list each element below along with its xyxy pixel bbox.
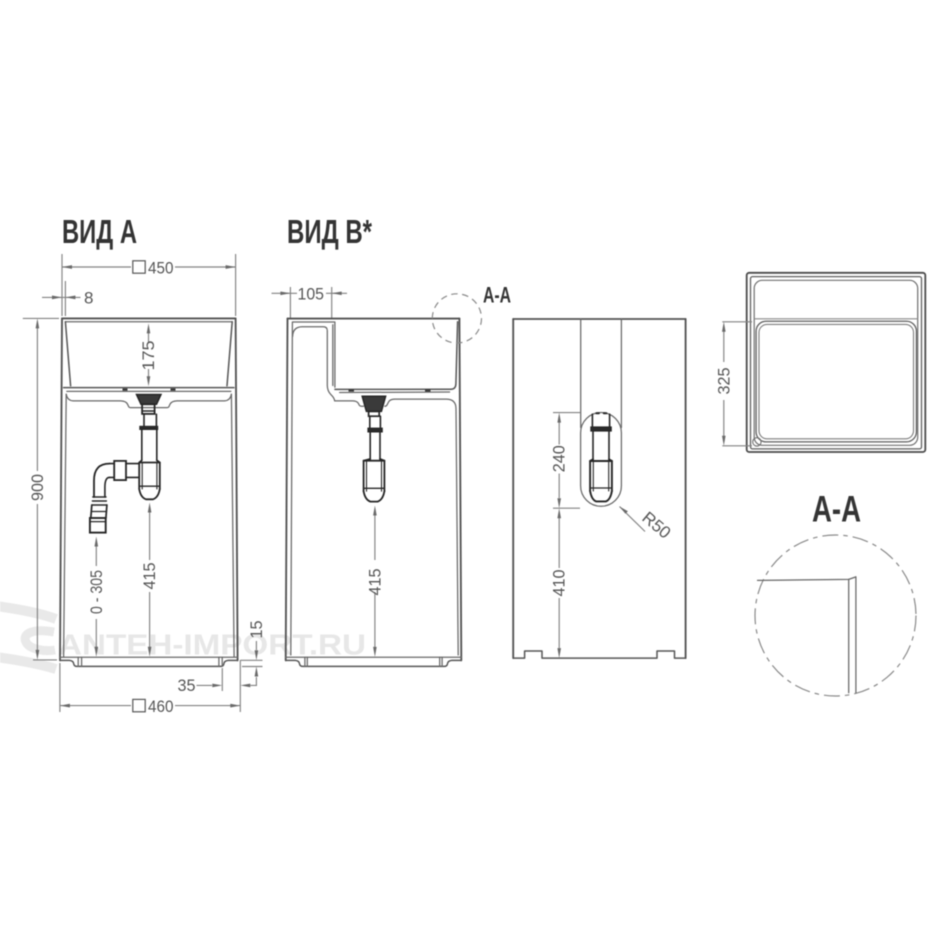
svg-text:A-A: A-A	[483, 283, 511, 308]
svg-text:A-A: A-A	[812, 489, 861, 530]
svg-text:15: 15	[247, 621, 266, 639]
svg-text:410: 410	[550, 570, 569, 597]
svg-text:175: 175	[139, 341, 158, 371]
svg-text:ВИД B*: ВИД B*	[287, 213, 372, 250]
svg-text:415: 415	[140, 563, 159, 590]
svg-text:R50: R50	[638, 508, 674, 542]
svg-text:460: 460	[148, 697, 174, 716]
svg-text:105: 105	[298, 284, 325, 303]
svg-text:325: 325	[714, 368, 733, 395]
svg-text:415: 415	[365, 569, 384, 596]
svg-text:35: 35	[178, 676, 196, 695]
svg-text:900: 900	[28, 474, 47, 501]
svg-text:240: 240	[550, 445, 569, 472]
svg-text:8: 8	[84, 289, 93, 308]
svg-text:450: 450	[148, 259, 174, 278]
svg-text:0 - 305: 0 - 305	[87, 570, 106, 614]
svg-text:ВИД А: ВИД А	[62, 213, 137, 250]
